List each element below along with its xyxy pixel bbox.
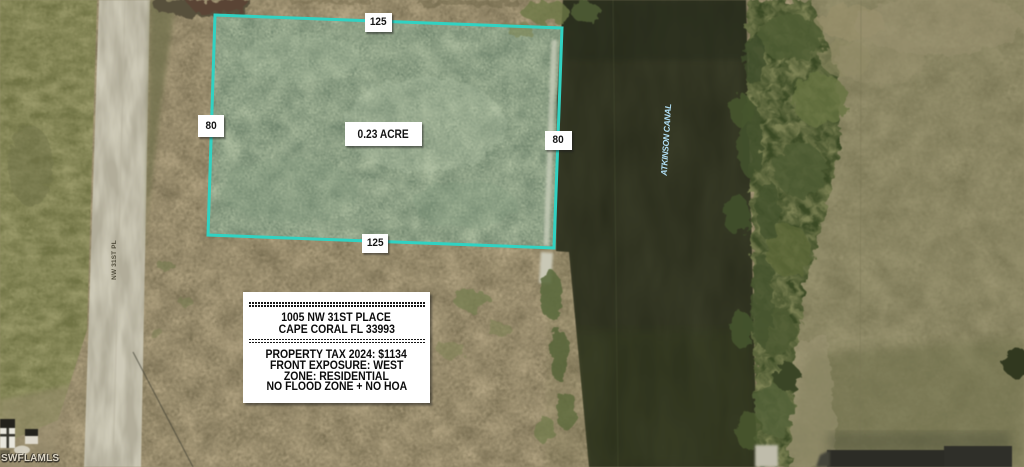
svg-text:NW 31ST PL: NW 31ST PL <box>111 240 118 280</box>
